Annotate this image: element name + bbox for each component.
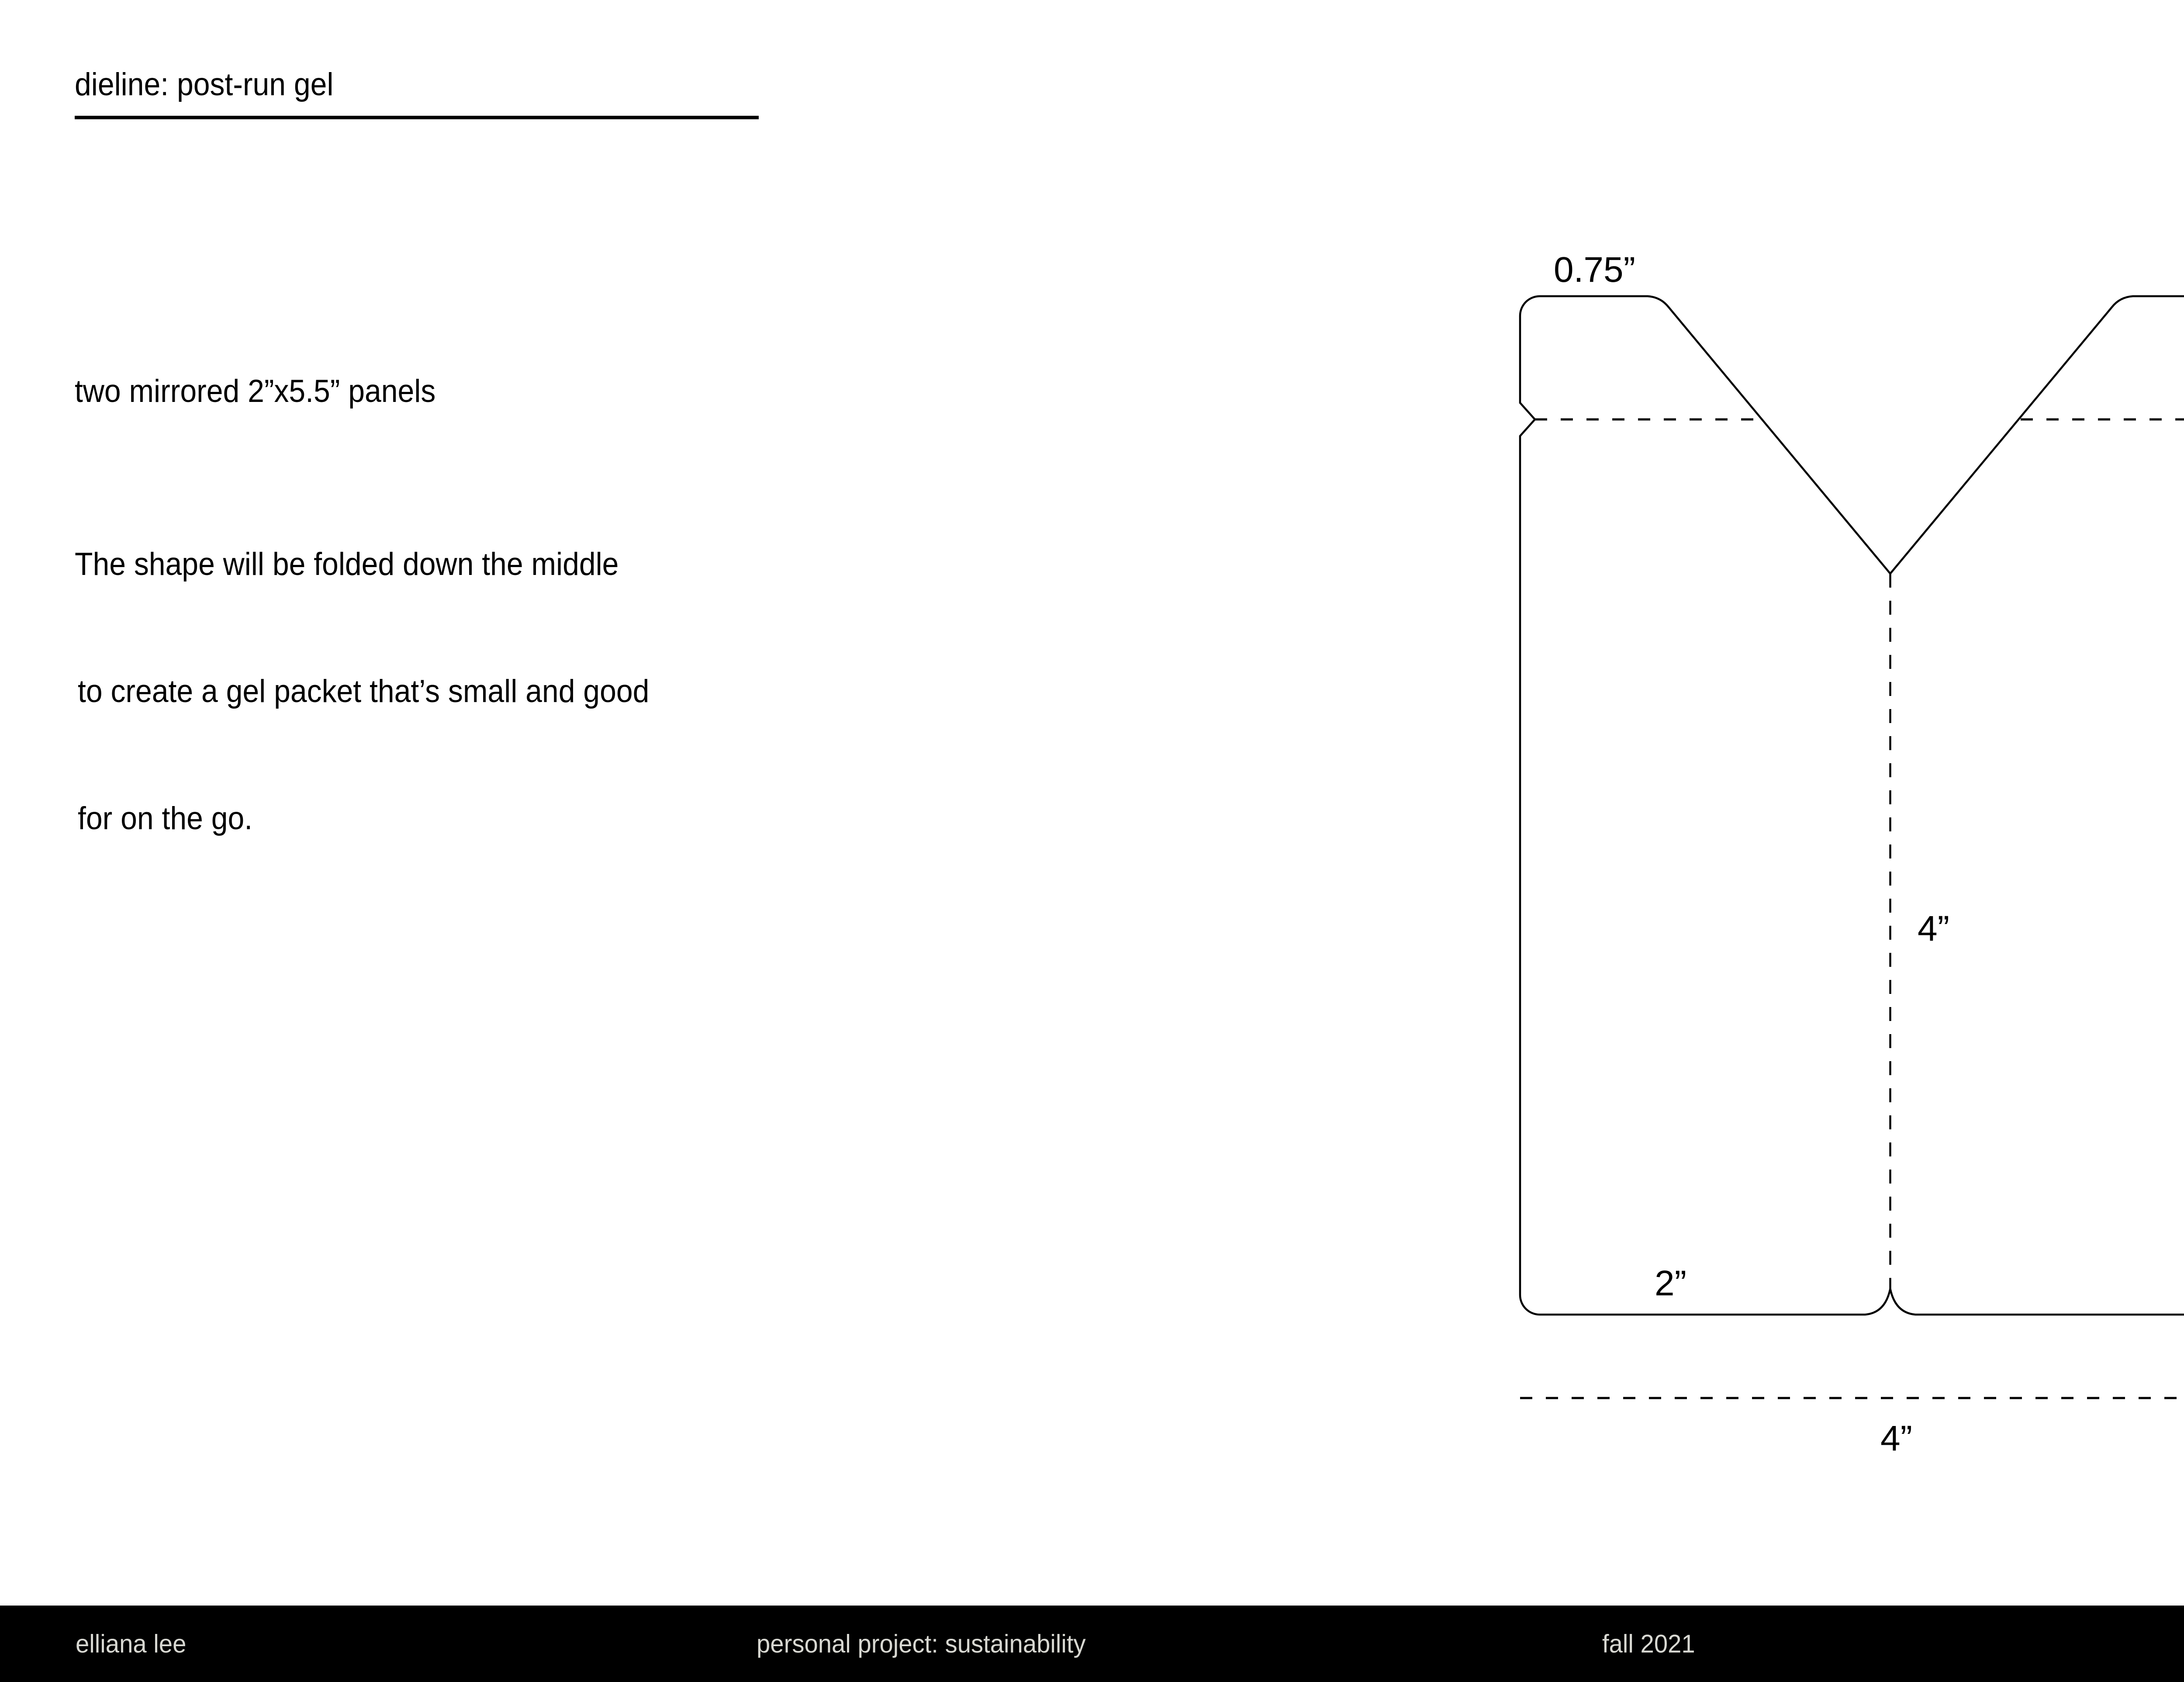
total-width-label: 4”: [1880, 1419, 1912, 1458]
flap-height-label: 0.75”: [1554, 250, 1635, 290]
panel-width-label: 2”: [1655, 1263, 1686, 1303]
footer-term: fall 2021: [1602, 1629, 1695, 1658]
dieline-diagram: 0.75” 4” 5.5” 2” 4”: [0, 0, 2184, 1682]
footer-project: personal project: sustainability: [757, 1629, 1086, 1658]
footer-author: elliana lee: [76, 1629, 186, 1658]
footer: elliana lee personal project: sustainabi…: [0, 1606, 2184, 1682]
dieline-outline: [1520, 296, 2184, 1315]
center-height-label: 4”: [1918, 909, 1949, 948]
slide-page: dieline: post-run gel two mirrored 2”x5.…: [0, 0, 2184, 1682]
